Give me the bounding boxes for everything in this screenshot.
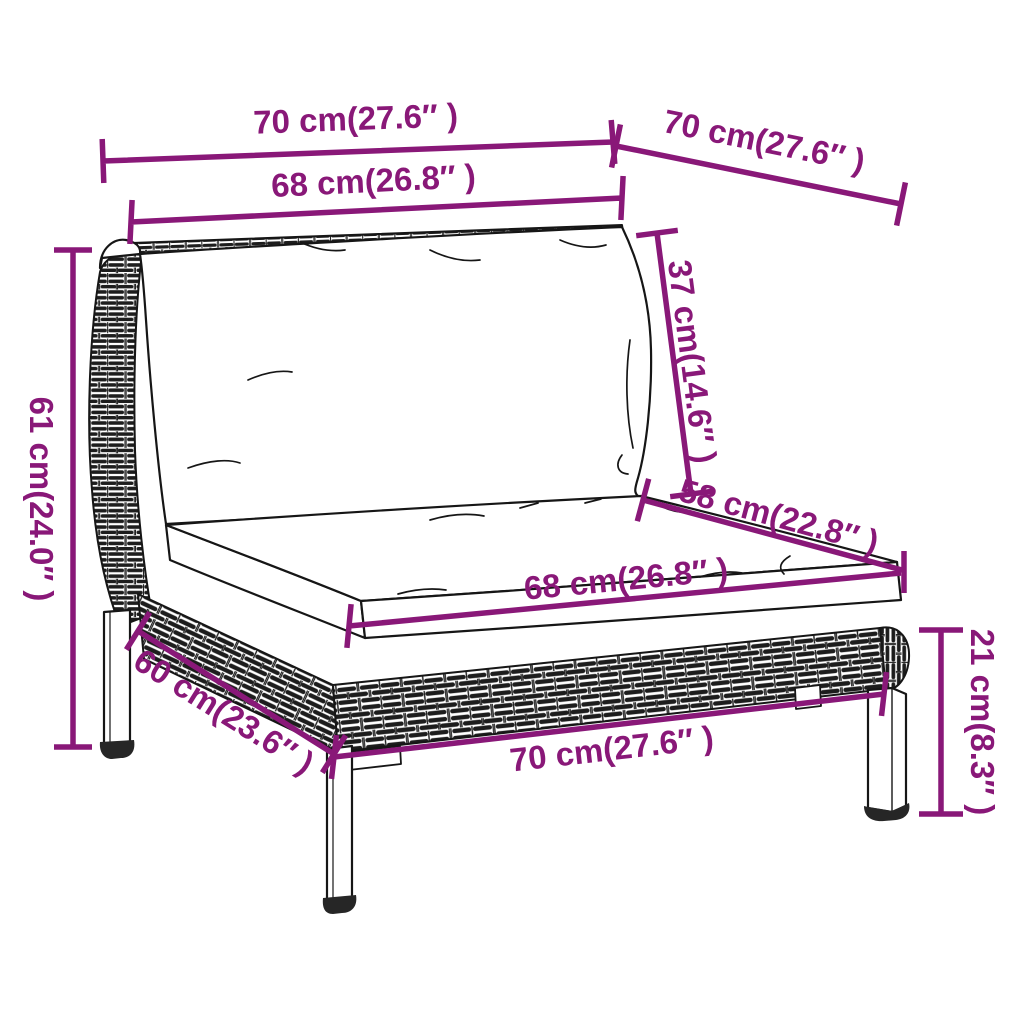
leg-left-rear — [100, 610, 135, 759]
dim-label-overall-height: 61 cm(24.0″ ) — [23, 397, 60, 602]
dim-label-top-depth: 70 cm(27.6″ ) — [660, 102, 868, 179]
dim-top-depth: 70 cm(27.6″ ) — [612, 102, 906, 225]
leg-foot — [323, 895, 357, 914]
leg-foot — [100, 740, 135, 759]
dim-label-top-width: 70 cm(27.6″ ) — [253, 96, 459, 140]
dim-label-back-cushion-height: 37 cm(14.6″ ) — [661, 258, 724, 466]
sofa-line-drawing — [89, 225, 909, 914]
chair-diagram-svg: 70 cm(27.6″ ) 70 cm(27.6″ ) 68 cm(26.8″ … — [0, 0, 1024, 1024]
dim-label-leg-height: 21 cm(8.3″ ) — [964, 629, 1001, 815]
rattan-back-column — [89, 252, 152, 626]
dim-leg-height: 21 cm(8.3″ ) — [919, 629, 1001, 815]
dim-overall-height: 61 cm(24.0″ ) — [23, 250, 92, 747]
leg-left-front — [323, 746, 357, 914]
leg-right — [864, 688, 909, 821]
dim-label-backrest-width: 68 cm(26.8″ ) — [270, 157, 476, 204]
dimension-diagram: 70 cm(27.6″ ) 70 cm(27.6″ ) 68 cm(26.8″ … — [0, 0, 1024, 1024]
back-cushion — [140, 227, 651, 524]
